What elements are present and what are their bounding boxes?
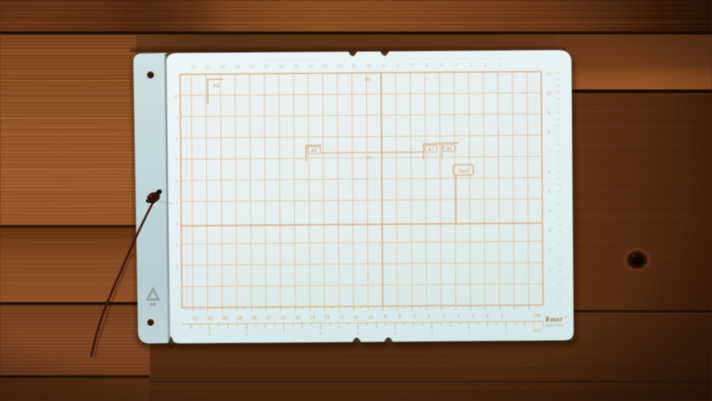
svg-text:10: 10 xyxy=(368,314,374,320)
svg-text:INCH: INCH xyxy=(533,329,542,333)
svg-text:10: 10 xyxy=(546,91,552,96)
svg-text:PP: PP xyxy=(150,302,156,307)
svg-text:A4: A4 xyxy=(213,83,219,89)
svg-text:22: 22 xyxy=(191,65,197,70)
svg-text:1: 1 xyxy=(501,313,504,319)
svg-text:12: 12 xyxy=(337,63,343,68)
svg-text:7: 7 xyxy=(413,314,416,320)
svg-text:18: 18 xyxy=(251,315,257,321)
svg-text:B7: B7 xyxy=(447,146,453,151)
svg-text:22: 22 xyxy=(193,316,199,322)
svg-text:21: 21 xyxy=(207,316,213,322)
svg-text:11: 11 xyxy=(546,71,551,76)
svg-text:B6: B6 xyxy=(366,155,372,160)
svg-text:15: 15 xyxy=(293,64,299,69)
svg-text:6: 6 xyxy=(428,314,431,320)
svg-text:3: 3 xyxy=(472,314,475,320)
svg-text:A5: A5 xyxy=(311,148,317,153)
svg-text:5: 5 xyxy=(442,314,445,320)
svg-text:18: 18 xyxy=(249,64,255,69)
svg-text:4: 4 xyxy=(457,314,460,320)
svg-text:10: 10 xyxy=(366,63,372,68)
svg-text:20: 20 xyxy=(220,64,226,69)
svg-text:Made in Taiwan: Made in Taiwan xyxy=(546,323,565,327)
svg-text:14: 14 xyxy=(308,64,314,69)
svg-text:iMAT: iMAT xyxy=(550,318,564,324)
svg-text:20: 20 xyxy=(222,316,228,322)
svg-text:12: 12 xyxy=(339,315,345,321)
svg-text:A7: A7 xyxy=(428,147,434,152)
svg-text:19: 19 xyxy=(235,64,241,69)
svg-text:Card: Card xyxy=(458,168,468,173)
svg-text:19: 19 xyxy=(237,315,243,321)
svg-text:9: 9 xyxy=(384,314,387,320)
svg-text:15: 15 xyxy=(295,315,301,321)
svg-text:CM: CM xyxy=(533,313,540,318)
svg-text:11: 11 xyxy=(354,314,359,320)
svg-text:11: 11 xyxy=(352,63,357,68)
svg-text:2: 2 xyxy=(486,313,489,319)
svg-text:14: 14 xyxy=(310,315,316,321)
svg-text:13: 13 xyxy=(324,315,330,321)
svg-text:17: 17 xyxy=(264,64,270,69)
svg-text:16: 16 xyxy=(279,64,285,69)
svg-text:13: 13 xyxy=(322,64,328,69)
svg-text:10: 10 xyxy=(174,94,179,99)
svg-text:17: 17 xyxy=(266,315,272,321)
svg-text:8: 8 xyxy=(399,314,402,320)
svg-text:16: 16 xyxy=(280,315,286,321)
svg-text:21: 21 xyxy=(206,64,212,69)
svg-text:B5: B5 xyxy=(365,77,371,82)
